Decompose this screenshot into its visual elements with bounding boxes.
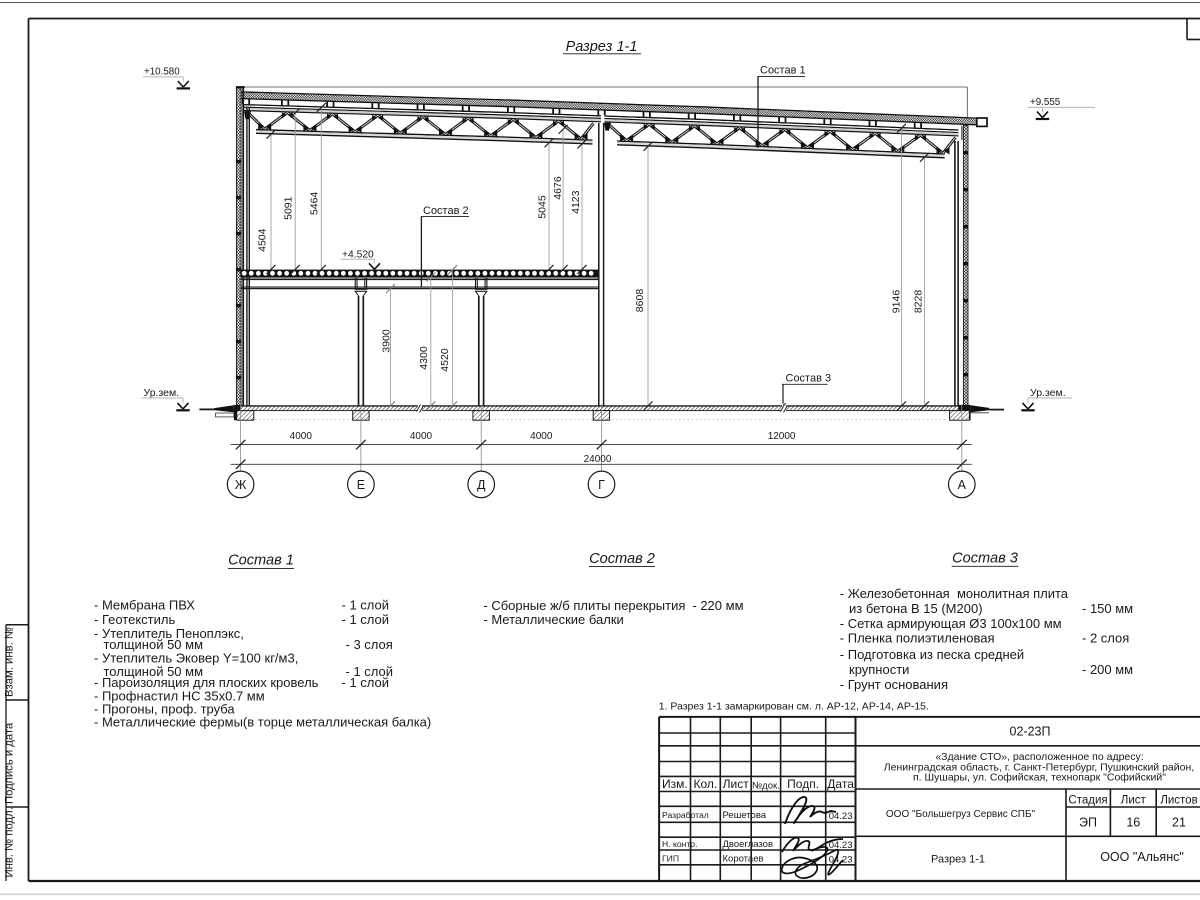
svg-text:- Подготовка из песка средней: - Подготовка из песка средней	[840, 647, 1024, 662]
svg-text:Разработал: Разработал	[662, 810, 709, 820]
svg-text:- 1 слой: - 1 слой	[342, 675, 390, 690]
svg-text:4676: 4676	[552, 176, 564, 200]
svg-text:п. Шушары, ул. Софийская, техн: п. Шушары, ул. Софийская, технопарк "Соф…	[913, 772, 1166, 784]
svg-text:- Пленка полиэтиленовая: - Пленка полиэтиленовая	[840, 631, 995, 646]
svg-text:Ур.зем.: Ур.зем.	[144, 387, 180, 399]
svg-text:- Железобетонная монолитная п: - Железобетонная монолитная плита	[840, 586, 1069, 601]
svg-text:8228: 8228	[913, 290, 925, 314]
svg-text:Ж: Ж	[235, 478, 247, 492]
svg-text:04.23: 04.23	[829, 840, 853, 851]
svg-text:+10.580: +10.580	[144, 67, 180, 78]
svg-text:Состав 3: Состав 3	[952, 551, 1018, 567]
svg-text:Листов: Листов	[1160, 795, 1197, 807]
svg-text:- Металлические фермы(в торце: - Металлические фермы(в торце металличес…	[94, 715, 431, 730]
svg-text:Ур.зем.: Ур.зем.	[1030, 387, 1066, 399]
svg-text:Е: Е	[357, 478, 365, 492]
svg-text:- 1 слой: - 1 слой	[342, 612, 390, 627]
svg-text:4000: 4000	[530, 431, 553, 442]
svg-text:Разрез 1-1: Разрез 1-1	[566, 39, 638, 55]
svg-text:- Металлические балки: - Металлические балки	[483, 612, 623, 627]
svg-text:3900: 3900	[380, 329, 392, 353]
svg-text:Состав 2: Состав 2	[423, 205, 469, 217]
svg-text:8608: 8608	[634, 289, 646, 313]
svg-text:04.23: 04.23	[829, 811, 853, 822]
svg-text:21: 21	[1172, 816, 1186, 830]
svg-text:Изм.: Изм.	[662, 777, 688, 791]
svg-text:Взам. инв. №: Взам. инв. №	[4, 627, 16, 697]
svg-text:+4.520: +4.520	[342, 249, 374, 260]
svg-text:- 2 слоя: - 2 слоя	[1082, 631, 1129, 646]
svg-text:- 1 слой: - 1 слой	[342, 598, 390, 613]
svg-text:- 220 мм: - 220 мм	[692, 598, 743, 613]
svg-text:Подп.: Подп.	[787, 777, 819, 791]
svg-text:9146: 9146	[891, 290, 903, 314]
svg-text:ЭП: ЭП	[1079, 816, 1097, 830]
svg-text:Состав 2: Состав 2	[589, 551, 655, 567]
svg-text:ООО "Большегруз Сервис СПБ": ООО "Большегруз Сервис СПБ"	[886, 809, 1036, 820]
svg-text:Лист: Лист	[1121, 795, 1147, 807]
svg-text:5045: 5045	[537, 195, 549, 219]
svg-text:ООО "Альянс": ООО "Альянс"	[1100, 850, 1184, 864]
svg-text:12000: 12000	[768, 431, 796, 442]
svg-text:Д: Д	[477, 478, 486, 492]
svg-text:из бетона В 15 (М200): из бетона В 15 (М200)	[849, 601, 983, 616]
svg-text:- Грунт основания: - Грунт основания	[840, 677, 948, 692]
svg-text:Коротаев: Коротаев	[723, 854, 764, 865]
svg-text:А: А	[958, 478, 967, 492]
svg-text:Лист: Лист	[723, 777, 750, 791]
svg-text:4000: 4000	[290, 431, 313, 442]
svg-text:Двоеглазов: Двоеглазов	[723, 839, 774, 850]
svg-text:- Сборные ж/б плиты перекрытия: - Сборные ж/б плиты перекрытия	[483, 598, 685, 613]
svg-text:крупности: крупности	[849, 662, 909, 677]
svg-text:Стадия: Стадия	[1068, 795, 1107, 807]
svg-text:02-23П: 02-23П	[1010, 725, 1051, 739]
svg-text:4000: 4000	[410, 431, 433, 442]
svg-text:- 3 слоя: - 3 слоя	[346, 637, 393, 652]
svg-text:Состав 1: Состав 1	[760, 64, 806, 76]
svg-text:4520: 4520	[439, 348, 451, 372]
svg-text:Подпись и дата: Подпись и дата	[4, 722, 16, 804]
svg-text:Разрез 1-1: Разрез 1-1	[931, 854, 985, 866]
svg-text:4300: 4300	[418, 346, 430, 370]
svg-text:Состав 3: Состав 3	[786, 373, 832, 385]
svg-text:Н. контр.: Н. контр.	[662, 839, 697, 849]
svg-text:- Геотекстиль: - Геотекстиль	[94, 612, 175, 627]
svg-text:- Мембрана ПВХ: - Мембрана ПВХ	[94, 598, 195, 613]
svg-text:16: 16	[1126, 816, 1140, 830]
svg-text:Кол.: Кол.	[694, 777, 718, 791]
svg-text:24000: 24000	[584, 454, 612, 465]
svg-text:- Сетка армирующая Ø3 100х100: - Сетка армирующая Ø3 100х100 мм	[840, 616, 1062, 631]
svg-text:1. Разрез 1-1 замаркирован см.: 1. Разрез 1-1 замаркирован см. л. АР-12,…	[659, 701, 929, 713]
svg-text:- 150 мм: - 150 мм	[1082, 601, 1133, 616]
svg-text:4123: 4123	[570, 190, 582, 214]
svg-text:4504: 4504	[256, 228, 268, 252]
svg-text:Инв. № подл.: Инв. № подл.	[4, 807, 16, 877]
svg-text:+9.555: +9.555	[1030, 97, 1061, 108]
svg-text:5464: 5464	[309, 192, 321, 216]
svg-text:- 200 мм: - 200 мм	[1082, 662, 1133, 677]
svg-text:ГИП: ГИП	[662, 854, 679, 864]
svg-text:Решетова: Решетова	[723, 810, 767, 821]
svg-text:Г: Г	[598, 478, 605, 492]
svg-text:5091: 5091	[283, 196, 295, 220]
svg-text:Состав 1: Состав 1	[228, 552, 294, 568]
svg-text:Дата: Дата	[827, 777, 854, 791]
svg-text:№док.: №док.	[752, 781, 780, 792]
